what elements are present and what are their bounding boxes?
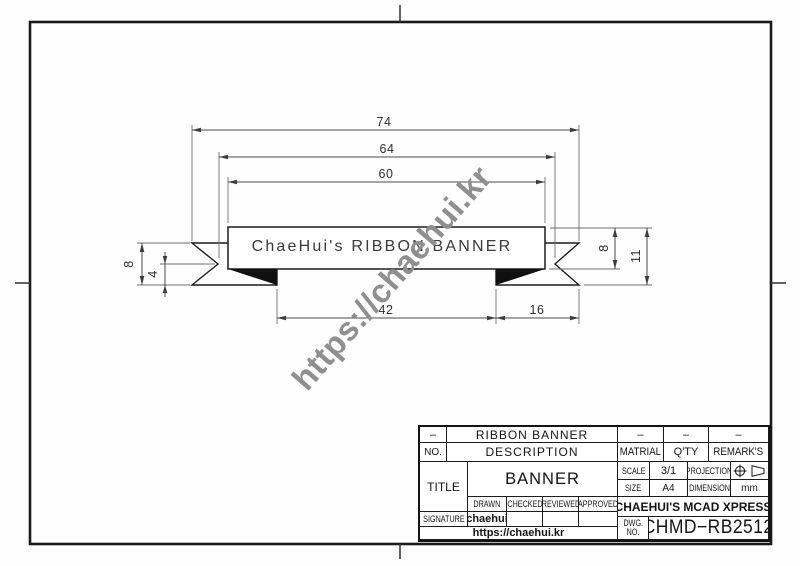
rev-cell: –	[420, 427, 447, 443]
drawing-sheet: 74 64 60 42 16 8 4 8 11 ChaeHui's RIBBON…	[0, 0, 800, 566]
remarks-header-cell: REMARK'S	[709, 443, 769, 462]
qty-value-cell: –	[664, 427, 709, 443]
description-header-cell: DESCRIPTION	[447, 443, 618, 462]
dim-banner-height: 8	[597, 244, 611, 251]
dwg-no-value-cell: CHMD−RB2512	[649, 517, 769, 540]
dimension-value-cell: mm	[731, 480, 769, 497]
approved-header-cell: APPROVED	[579, 497, 618, 512]
reviewed-value-cell	[543, 512, 579, 527]
dwg-no-label-cell: DWG. NO.	[618, 517, 649, 540]
approved-value-cell	[579, 512, 618, 527]
projection-symbol-cell	[731, 462, 769, 480]
dim-total-width: 74	[377, 115, 392, 129]
title-label-cell: TITLE	[420, 462, 468, 512]
dim-bottom-right: 16	[530, 303, 545, 317]
projection-symbol-icon	[733, 464, 766, 478]
size-value-cell: A4	[650, 480, 688, 497]
title-value-cell: BANNER	[468, 462, 618, 497]
company-cell: CHAEHUI'S MCAD XPRESS	[618, 497, 769, 517]
size-label-cell: SIZE	[618, 480, 650, 497]
dim-total-height: 11	[629, 249, 643, 263]
dimension-label-cell: DIMENSION	[688, 480, 731, 497]
matrial-header-cell: MATRIAL	[618, 443, 664, 462]
signature-label-cell: SIGNATURE	[420, 512, 468, 527]
remarks-value-cell: –	[709, 427, 769, 443]
title-block: – RIBBON BANNER – – – NO. DESCRIPTION MA…	[418, 425, 771, 542]
dim-notch-span: 64	[380, 142, 395, 156]
scale-label-cell: SCALE	[618, 462, 650, 480]
drawn-value-cell: chaehui	[468, 512, 507, 527]
checked-value-cell	[507, 512, 543, 527]
ribbon-banner-text: ChaeHui's RIBBON BANNER	[232, 238, 532, 256]
matrial-value-cell: –	[618, 427, 664, 443]
item-name-cell: RIBBON BANNER	[447, 427, 618, 443]
qty-header-cell: Q'TY	[664, 443, 709, 462]
checked-header-cell: CHECKED	[507, 497, 543, 512]
scale-value-cell: 3/1	[650, 462, 688, 480]
url-cell: https://chaehui.kr	[420, 527, 618, 540]
dim-tail-height: 8	[122, 260, 136, 267]
dim-notch-depth: 4	[146, 270, 160, 277]
reviewed-header-cell: REVIEWED	[543, 497, 579, 512]
dim-banner-width: 60	[379, 167, 394, 181]
projection-label-cell: PROJECTION	[688, 462, 731, 480]
drawn-header-cell: DRAWN	[468, 497, 507, 512]
no-header-cell: NO.	[420, 443, 447, 462]
